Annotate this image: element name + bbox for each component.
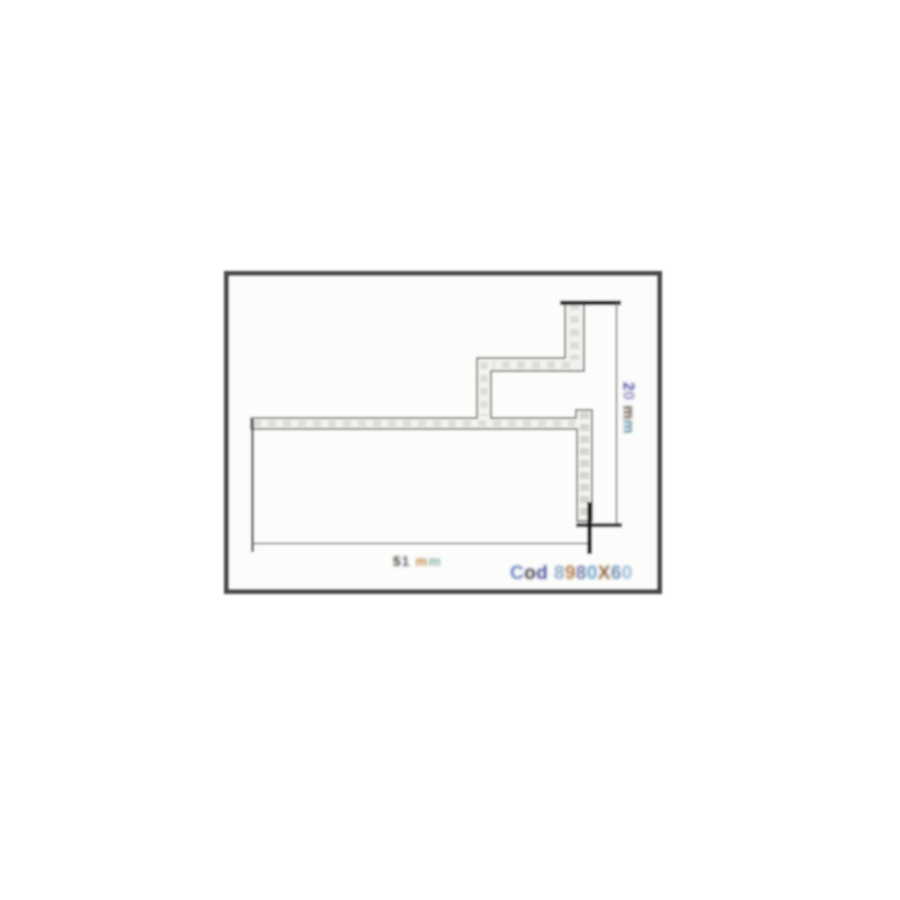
svg-text:20 mm: 20 mm (620, 382, 637, 434)
svg-text:Cod 8980X60: Cod 8980X60 (510, 563, 633, 584)
svg-text:51 mm: 51 mm (393, 554, 442, 569)
